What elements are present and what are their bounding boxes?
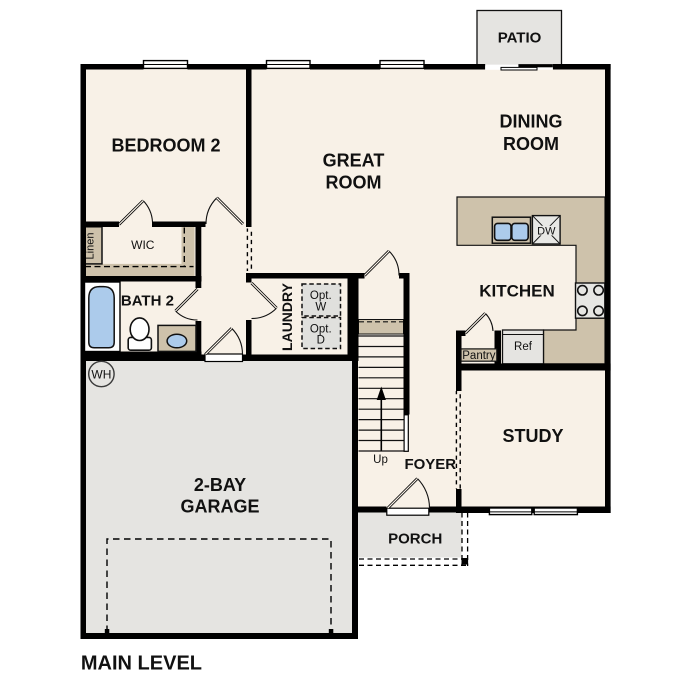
svg-text:PATIO: PATIO	[498, 30, 542, 47]
svg-text:BEDROOM 2: BEDROOM 2	[111, 136, 220, 156]
svg-text:STUDY: STUDY	[502, 426, 563, 446]
svg-text:KITCHEN: KITCHEN	[479, 282, 555, 301]
svg-text:W: W	[315, 302, 326, 314]
svg-text:Ref: Ref	[514, 341, 533, 353]
svg-text:2-BAY: 2-BAY	[194, 475, 246, 495]
svg-text:GARAGE: GARAGE	[180, 497, 259, 517]
svg-text:Up: Up	[373, 454, 388, 466]
svg-text:ROOM: ROOM	[503, 134, 559, 154]
svg-text:Opt.: Opt.	[310, 290, 332, 302]
svg-text:BATH 2: BATH 2	[121, 293, 174, 310]
svg-text:DINING: DINING	[500, 112, 563, 132]
svg-text:DW: DW	[537, 226, 556, 238]
svg-text:Linen: Linen	[85, 233, 97, 260]
svg-text:FOYER: FOYER	[404, 456, 456, 473]
svg-text:D: D	[317, 334, 325, 346]
svg-text:Pantry: Pantry	[462, 350, 495, 362]
svg-text:GREAT: GREAT	[323, 151, 385, 171]
svg-text:PORCH: PORCH	[388, 530, 442, 547]
svg-text:MAIN LEVEL: MAIN LEVEL	[81, 652, 202, 674]
svg-text:WIC: WIC	[131, 238, 155, 252]
svg-text:LAUNDRY: LAUNDRY	[279, 282, 295, 351]
svg-text:WH: WH	[91, 367, 111, 381]
svg-text:ROOM: ROOM	[326, 173, 382, 193]
